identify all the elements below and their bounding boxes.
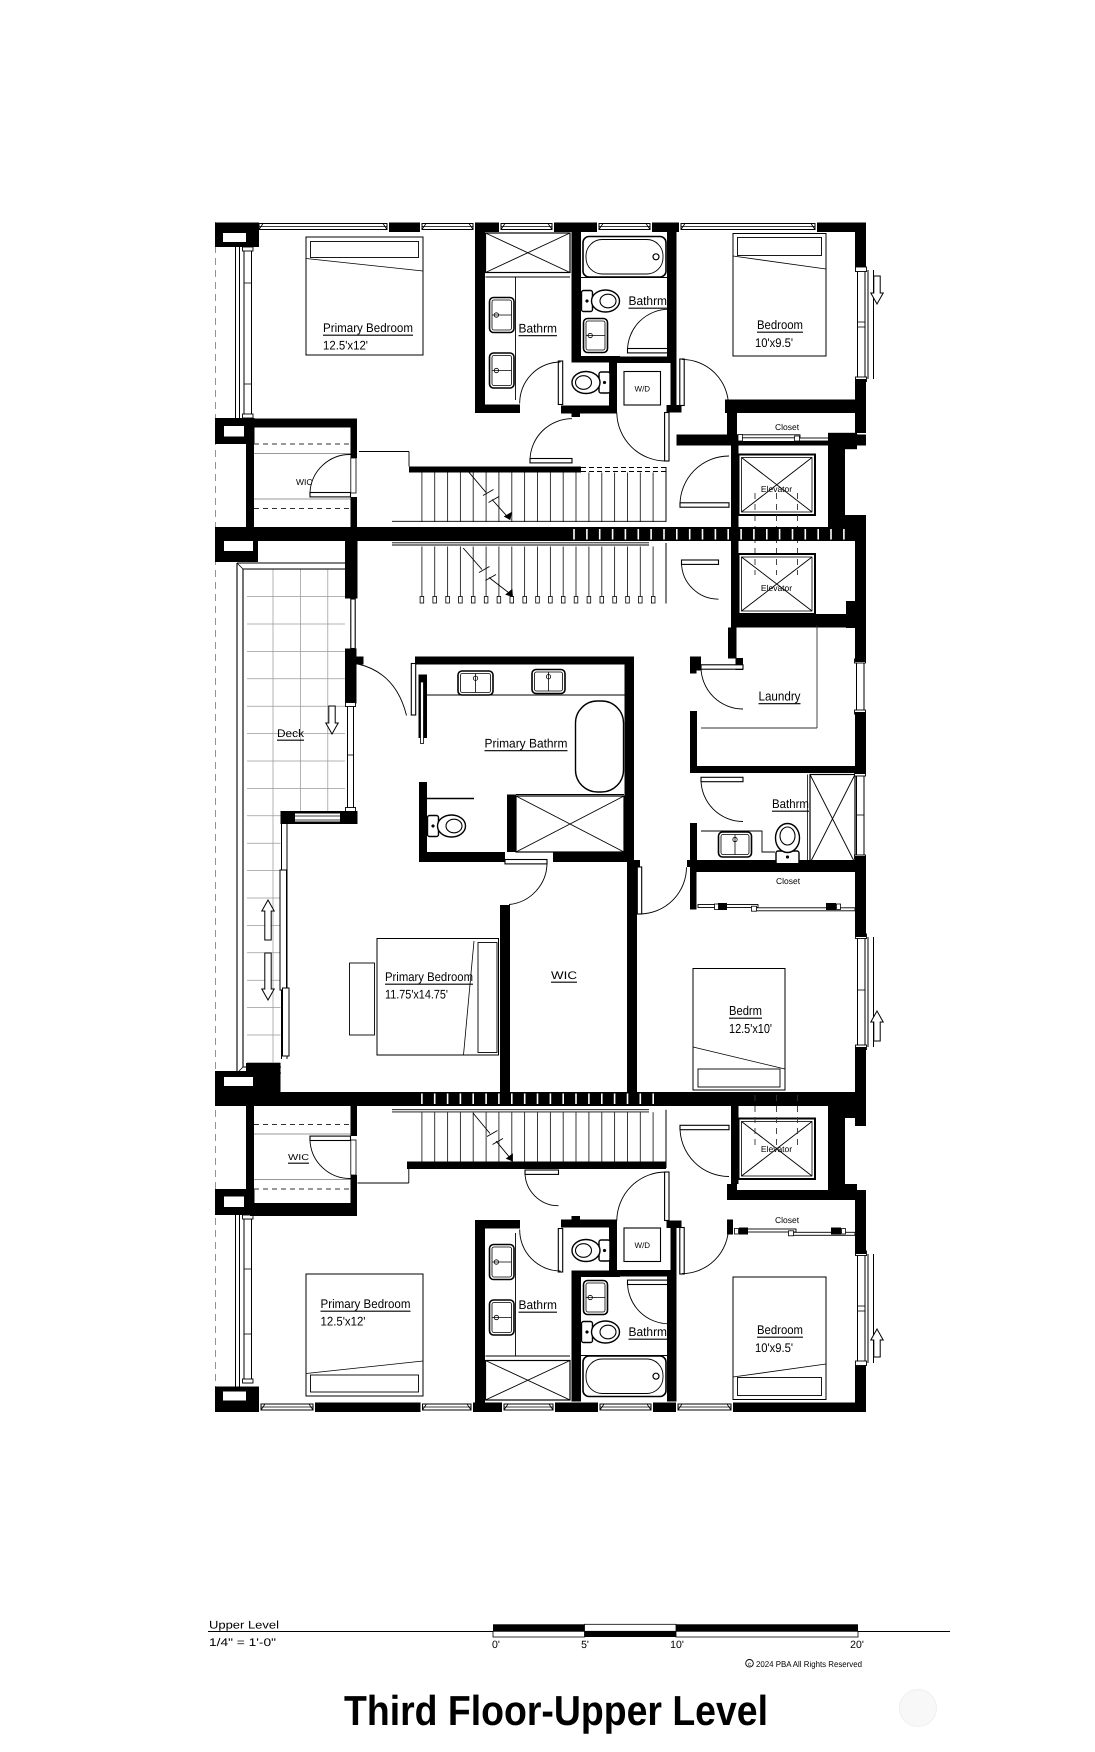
svg-text:10': 10' — [670, 1639, 684, 1651]
svg-text:Bathrm: Bathrm — [629, 1325, 668, 1339]
svg-text:Closet: Closet — [775, 1215, 800, 1225]
svg-text:20': 20' — [850, 1639, 864, 1651]
svg-text:5': 5' — [581, 1639, 589, 1651]
svg-text:Bathrm: Bathrm — [629, 294, 668, 308]
svg-text:W/D: W/D — [635, 1241, 651, 1250]
svg-text:12.5'x12': 12.5'x12' — [321, 1315, 366, 1329]
svg-text:Elevator: Elevator — [761, 484, 792, 494]
svg-text:Upper Level: Upper Level — [209, 1620, 279, 1632]
svg-text:W/D: W/D — [635, 385, 651, 394]
svg-text:WIC: WIC — [288, 1152, 309, 1162]
svg-text:Primary Bedroom: Primary Bedroom — [385, 970, 473, 984]
svg-text:11.75'x14.75': 11.75'x14.75' — [385, 988, 448, 1002]
svg-text:Laundry: Laundry — [759, 689, 801, 704]
svg-text:c: c — [748, 1662, 751, 1668]
svg-text:Closet: Closet — [776, 876, 801, 886]
svg-text:Bathrm: Bathrm — [519, 322, 558, 336]
svg-text:Elevator: Elevator — [761, 1144, 792, 1154]
svg-text:12.5'x12': 12.5'x12' — [323, 339, 368, 353]
svg-text:Bathrm: Bathrm — [519, 1298, 558, 1312]
svg-text:2024 PBA All Rights Reserved: 2024 PBA All Rights Reserved — [756, 1659, 862, 1669]
svg-text:12.5'x10': 12.5'x10' — [729, 1021, 772, 1036]
svg-text:Third Floor-Upper Level: Third Floor-Upper Level — [344, 1687, 768, 1734]
svg-text:WIC: WIC — [296, 477, 313, 487]
svg-text:WIC: WIC — [551, 970, 577, 982]
svg-text:Bedroom: Bedroom — [757, 1323, 803, 1337]
svg-text:Closet: Closet — [775, 422, 800, 432]
svg-text:10'x9.5': 10'x9.5' — [755, 336, 793, 350]
svg-text:Bedroom: Bedroom — [757, 318, 803, 332]
svg-text:Primary Bathrm: Primary Bathrm — [485, 737, 568, 751]
svg-text:Deck: Deck — [277, 728, 305, 740]
svg-text:Bedrm: Bedrm — [729, 1003, 762, 1018]
svg-text:Elevator: Elevator — [761, 583, 792, 593]
svg-text:1/4" = 1'-0": 1/4" = 1'-0" — [209, 1637, 276, 1649]
svg-text:0': 0' — [492, 1639, 500, 1651]
svg-text:Primary Bedroom: Primary Bedroom — [323, 321, 413, 335]
svg-text:10'x9.5': 10'x9.5' — [755, 1341, 793, 1355]
svg-text:Primary Bedroom: Primary Bedroom — [321, 1297, 411, 1311]
svg-text:Bathrm: Bathrm — [772, 797, 809, 811]
